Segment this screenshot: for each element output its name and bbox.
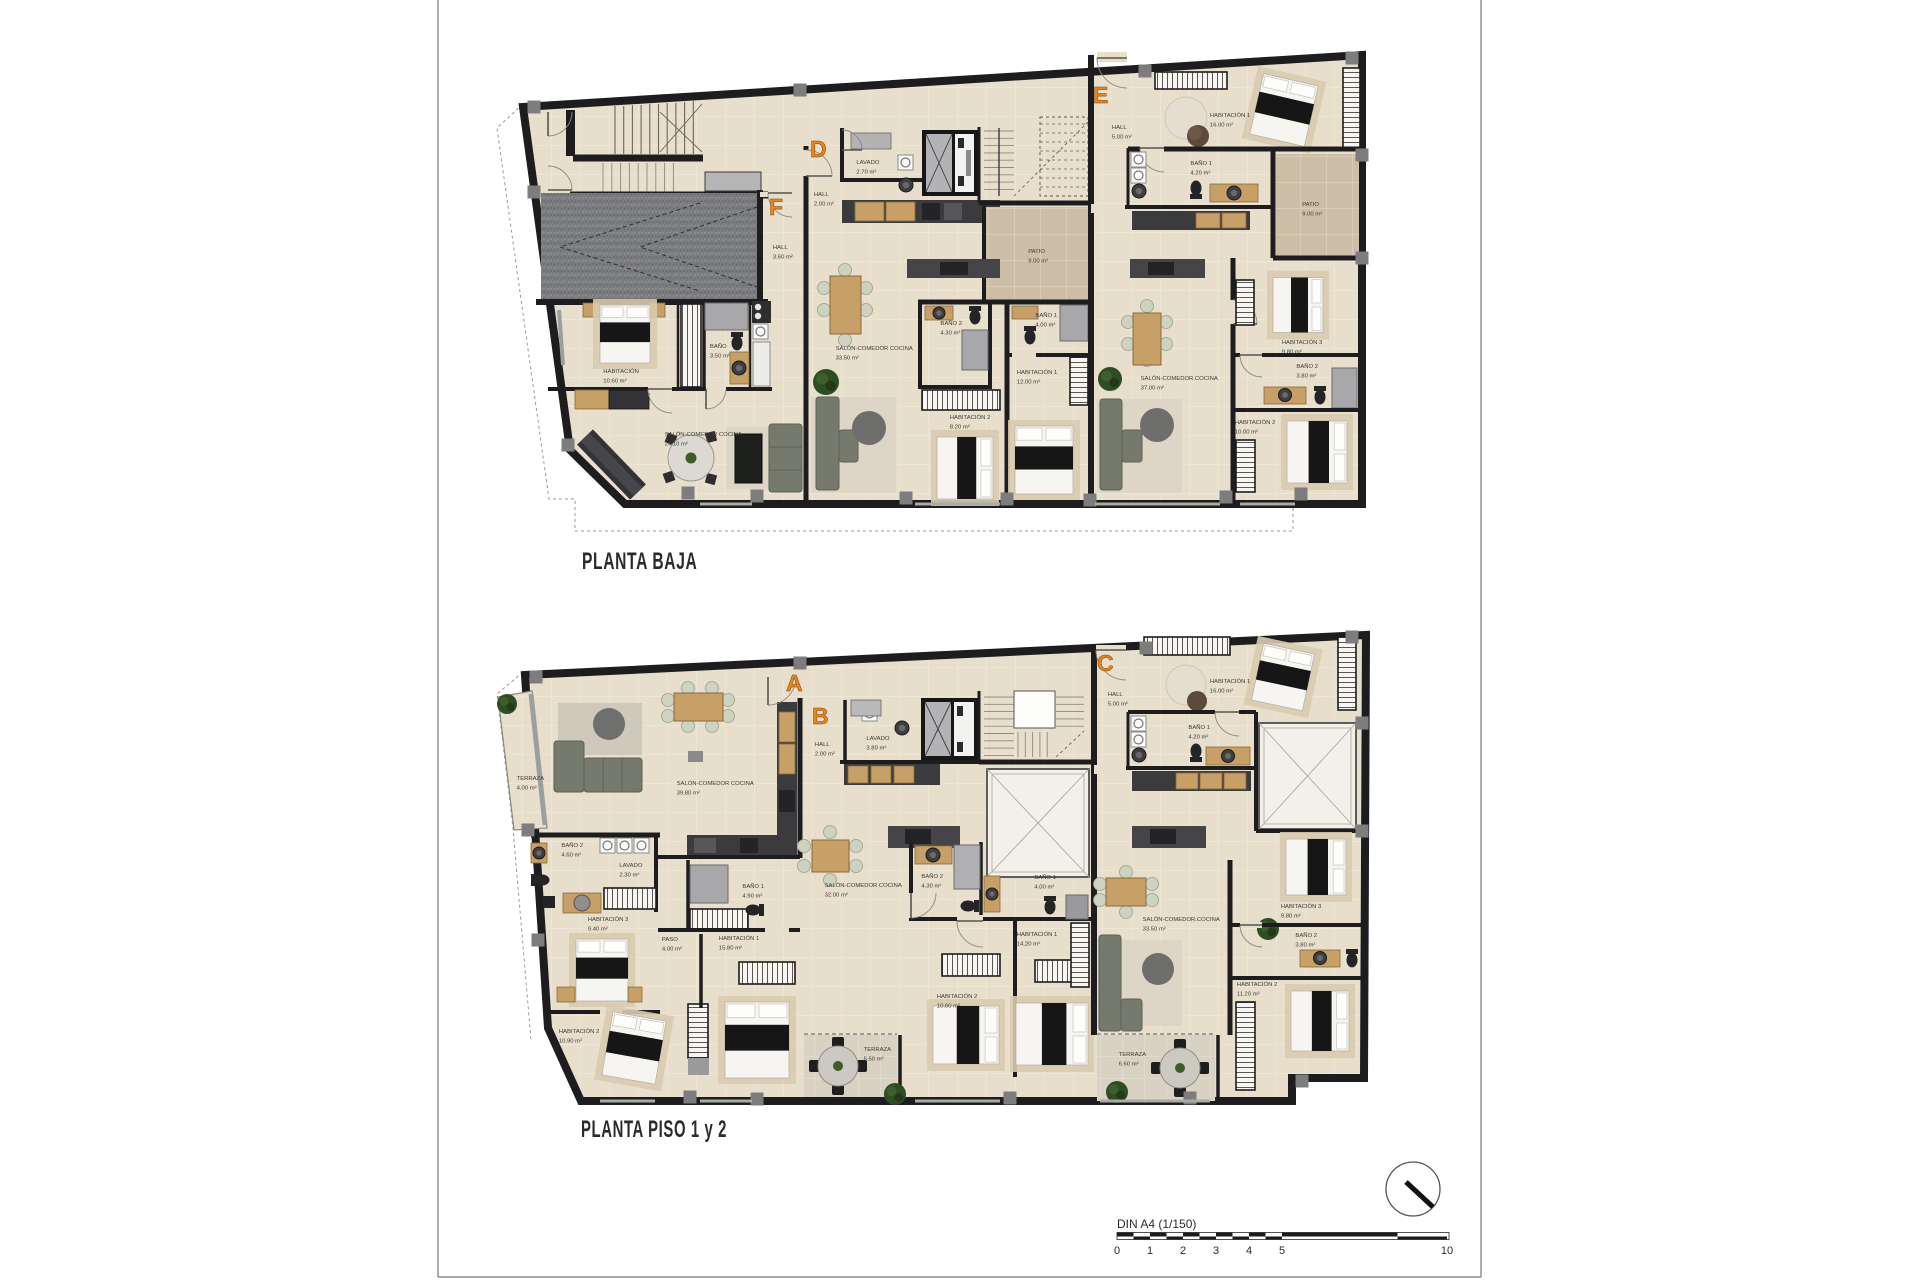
svg-text:10.00 m²: 10.00 m² (1235, 430, 1258, 436)
svg-text:SALÓN-COMEDOR.COCINA: SALÓN-COMEDOR.COCINA (1141, 375, 1218, 382)
svg-text:TERRAZA: TERRAZA (517, 776, 545, 782)
svg-text:15.80 m²: 15.80 m² (719, 946, 742, 952)
svg-text:33.50 m²: 33.50 m² (836, 356, 859, 362)
svg-text:4.30 m²: 4.30 m² (940, 331, 960, 337)
svg-text:SALÓN-COMEDOR COCINA: SALÓN-COMEDOR COCINA (836, 345, 913, 352)
svg-text:0: 0 (1114, 1245, 1120, 1257)
svg-text:HABITACIÓN: HABITACIÓN (603, 368, 639, 375)
svg-text:HABITACIÓN 3: HABITACIÓN 3 (1281, 903, 1322, 910)
svg-text:PASO: PASO (662, 937, 678, 943)
svg-text:HABITACIÓN 3: HABITACIÓN 3 (588, 916, 629, 923)
svg-text:BAÑO 1: BAÑO 1 (1190, 160, 1212, 167)
svg-text:BAÑO 1: BAÑO 1 (742, 883, 764, 890)
svg-text:D: D (810, 136, 827, 162)
svg-text:24.10 m²: 24.10 m² (665, 442, 688, 448)
svg-text:SALÓN-COMEDOR COCINA: SALÓN-COMEDOR COCINA (665, 431, 742, 438)
svg-text:3.80 m²: 3.80 m² (1296, 374, 1316, 380)
svg-text:3.80 m²: 3.80 m² (866, 746, 886, 752)
svg-text:9.80 m²: 9.80 m² (1282, 350, 1302, 356)
svg-text:2.30 m²: 2.30 m² (619, 873, 639, 879)
svg-text:LAVADO: LAVADO (856, 160, 879, 166)
svg-text:C: C (1097, 650, 1114, 676)
svg-text:HALL: HALL (815, 742, 830, 748)
svg-text:HALL: HALL (773, 245, 788, 251)
svg-text:TERRAZA: TERRAZA (864, 1047, 892, 1053)
svg-text:BAÑO 2: BAÑO 2 (921, 873, 943, 880)
svg-text:HABITACIÓN 1: HABITACIÓN 1 (1210, 112, 1250, 119)
svg-text:39.80 m²: 39.80 m² (677, 791, 700, 797)
svg-text:HABITACIÓN 1: HABITACIÓN 1 (1017, 369, 1057, 376)
svg-text:SALÓN-COMEDOR COCINA: SALÓN-COMEDOR COCINA (825, 882, 902, 889)
svg-text:6.60 m²: 6.60 m² (1119, 1062, 1139, 1068)
svg-text:10.60 m²: 10.60 m² (937, 1004, 960, 1010)
svg-text:9.00 m²: 9.00 m² (1028, 259, 1048, 265)
svg-text:4.90 m²: 4.90 m² (742, 894, 762, 900)
svg-text:11.20 m²: 11.20 m² (1237, 992, 1260, 998)
svg-text:10.60 m²: 10.60 m² (603, 379, 626, 385)
svg-text:2.00 m²: 2.00 m² (814, 202, 834, 208)
svg-text:9.40 m²: 9.40 m² (588, 927, 608, 933)
svg-text:33.50 m²: 33.50 m² (1143, 927, 1166, 933)
svg-text:A: A (786, 670, 803, 696)
svg-text:9.00 m²: 9.00 m² (1302, 212, 1322, 218)
svg-text:5: 5 (1279, 1245, 1285, 1257)
svg-text:PATIO: PATIO (1028, 249, 1045, 255)
svg-text:16.00 m²: 16.00 m² (1210, 123, 1233, 129)
svg-text:HABITACIÓN 2: HABITACIÓN 2 (1237, 981, 1277, 988)
svg-text:4.00 m²: 4.00 m² (517, 786, 537, 792)
svg-text:HALL: HALL (1108, 692, 1123, 698)
svg-text:HABITACIÓN 3: HABITACIÓN 3 (1282, 339, 1323, 346)
svg-text:37.00 m²: 37.00 m² (1141, 386, 1164, 392)
svg-text:LAVADO: LAVADO (866, 736, 889, 742)
svg-text:14.20 m²: 14.20 m² (1017, 942, 1040, 948)
svg-text:4.30 m²: 4.30 m² (921, 884, 941, 890)
svg-text:3.80 m²: 3.80 m² (1295, 943, 1315, 949)
svg-text:4.00 m²: 4.00 m² (662, 947, 682, 953)
svg-text:LAVADO: LAVADO (619, 863, 642, 869)
svg-text:HABITACIÓN 2: HABITACIÓN 2 (559, 1028, 599, 1035)
svg-text:2.70 m²: 2.70 m² (856, 170, 876, 176)
svg-text:5.50 m²: 5.50 m² (864, 1057, 884, 1063)
svg-text:3.50 m²: 3.50 m² (710, 354, 730, 360)
svg-text:2.00 m²: 2.00 m² (815, 752, 835, 758)
svg-text:4.20 m²: 4.20 m² (1188, 735, 1208, 741)
svg-text:HABITACIÓN 2: HABITACIÓN 2 (950, 414, 990, 421)
svg-text:HABITACIÓN 2: HABITACIÓN 2 (1235, 419, 1275, 426)
svg-text:12.00 m²: 12.00 m² (1017, 380, 1040, 386)
svg-text:BAÑO 2: BAÑO 2 (1295, 932, 1317, 939)
svg-text:10: 10 (1441, 1245, 1453, 1257)
svg-text:16.00 m²: 16.00 m² (1210, 689, 1233, 695)
svg-text:4.20 m²: 4.20 m² (1190, 171, 1210, 177)
svg-text:2: 2 (1180, 1245, 1186, 1257)
svg-text:HALL: HALL (814, 192, 829, 198)
svg-text:4: 4 (1246, 1245, 1252, 1257)
svg-text:9.80 m²: 9.80 m² (1281, 914, 1301, 920)
svg-text:3.60 m²: 3.60 m² (773, 255, 793, 261)
svg-text:4.00 m²: 4.00 m² (1034, 885, 1054, 891)
svg-text:SALÓN-COMEDOR COCINA: SALÓN-COMEDOR COCINA (677, 780, 754, 787)
svg-text:HABITACIÓN 2: HABITACIÓN 2 (937, 993, 977, 1000)
svg-text:5.00 m²: 5.00 m² (1108, 702, 1128, 708)
svg-text:HALL: HALL (1112, 125, 1127, 131)
svg-text:E: E (1093, 82, 1108, 108)
svg-text:BAÑO 1: BAÑO 1 (1034, 874, 1056, 881)
svg-text:HABITACIÓN 1: HABITACIÓN 1 (719, 935, 759, 942)
svg-text:8.20 m²: 8.20 m² (950, 425, 970, 431)
svg-text:BAÑO 1: BAÑO 1 (1035, 312, 1057, 319)
svg-text:PATIO: PATIO (1302, 202, 1319, 208)
svg-text:1: 1 (1147, 1245, 1153, 1257)
svg-text:BAÑO: BAÑO (710, 343, 727, 350)
svg-text:BAÑO 2: BAÑO 2 (561, 842, 583, 849)
svg-text:SALÓN-COMEDOR.COCINA: SALÓN-COMEDOR.COCINA (1143, 916, 1220, 923)
svg-text:4.60 m²: 4.60 m² (561, 853, 581, 859)
svg-text:HABITACIÓN 1: HABITACIÓN 1 (1017, 931, 1057, 938)
svg-text:3: 3 (1213, 1245, 1219, 1257)
svg-text:B: B (812, 703, 829, 729)
svg-text:5.00 m²: 5.00 m² (1112, 135, 1132, 141)
svg-text:F: F (769, 194, 783, 220)
svg-text:PLANTA PISO 1 y 2: PLANTA PISO 1 y 2 (581, 1117, 727, 1143)
svg-text:TERRAZA: TERRAZA (1119, 1052, 1147, 1058)
svg-text:32.00 m²: 32.00 m² (825, 893, 848, 899)
svg-text:BAÑO 2: BAÑO 2 (1296, 363, 1318, 370)
svg-text:BAÑO 1: BAÑO 1 (1188, 724, 1210, 731)
svg-text:4.00 m²: 4.00 m² (1035, 323, 1055, 329)
svg-text:HABITACIÓN 1: HABITACIÓN 1 (1210, 678, 1250, 685)
svg-text:DIN A4 (1/150): DIN A4 (1/150) (1117, 1217, 1196, 1231)
svg-text:10.90 m²: 10.90 m² (559, 1039, 582, 1045)
svg-text:BAÑO 2: BAÑO 2 (940, 320, 962, 327)
svg-text:PLANTA BAJA: PLANTA BAJA (582, 549, 697, 575)
